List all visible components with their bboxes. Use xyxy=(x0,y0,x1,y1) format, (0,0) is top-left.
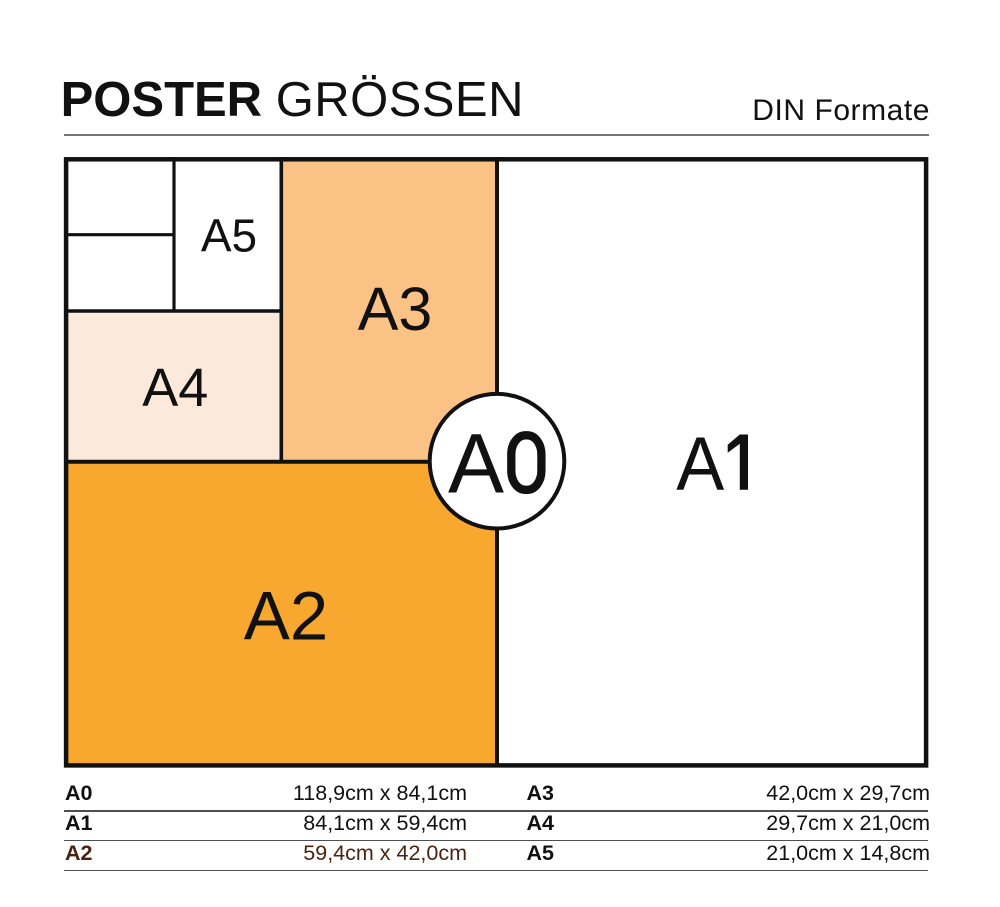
svg-text:A: A xyxy=(448,416,504,510)
svg-text:A: A xyxy=(676,422,724,507)
svg-text:A3: A3 xyxy=(358,275,433,343)
svg-text:A2: A2 xyxy=(244,577,328,654)
svg-text:A4: A4 xyxy=(142,358,208,418)
svg-text:A5: A5 xyxy=(201,210,257,262)
